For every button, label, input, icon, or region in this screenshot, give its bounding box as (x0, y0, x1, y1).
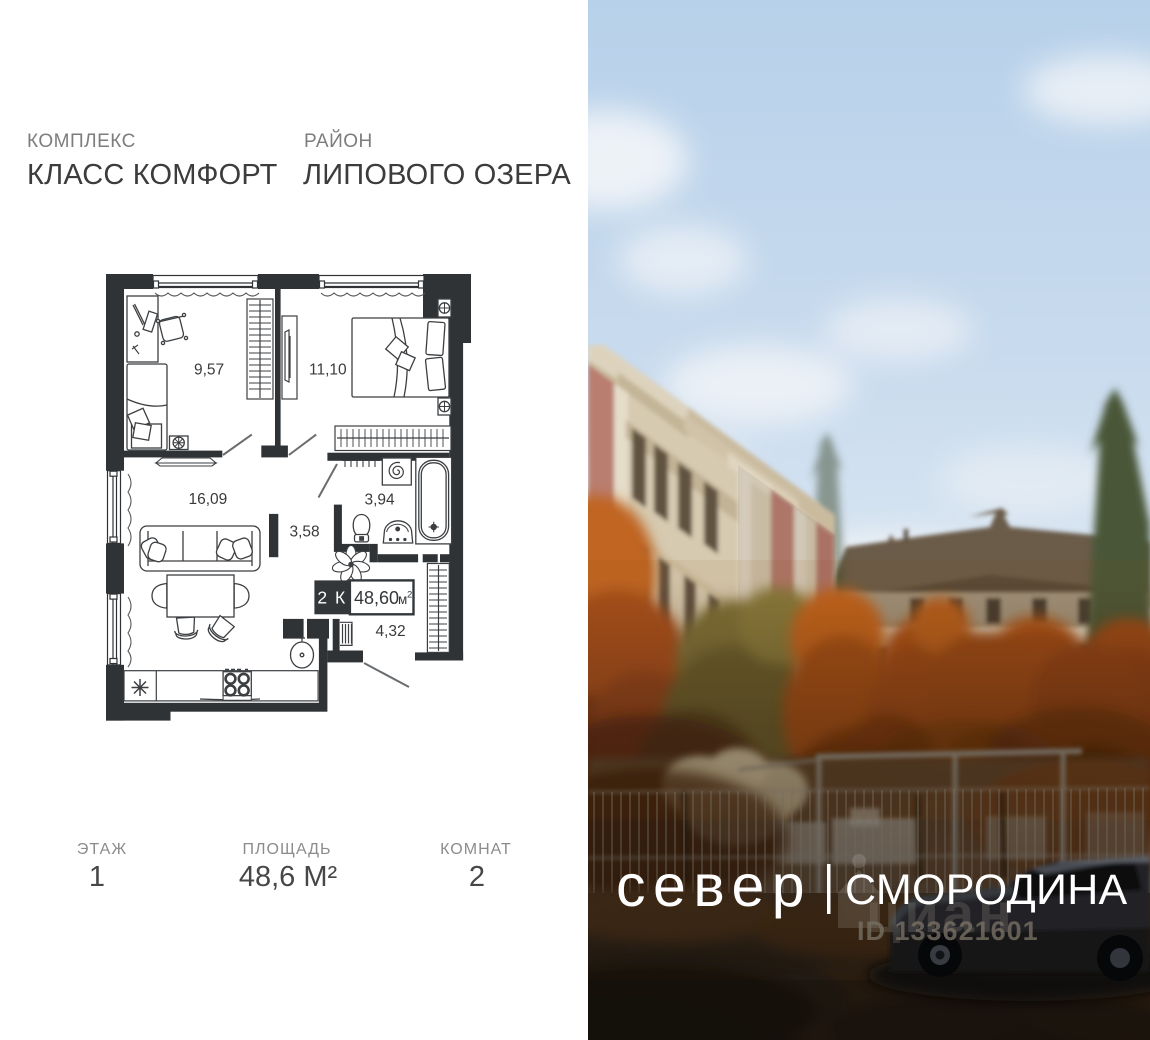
svg-text:СМОРОДИНА: СМОРОДИНА (845, 866, 1128, 914)
svg-text:ID 133621601: ID 133621601 (857, 916, 1039, 946)
svg-text:2 К: 2 К (317, 588, 346, 608)
svg-text:3,94: 3,94 (365, 492, 396, 509)
svg-text:9,57: 9,57 (194, 362, 224, 379)
svg-text:2: 2 (407, 590, 412, 601)
svg-text:север: север (616, 853, 812, 919)
svg-text:м: м (398, 592, 407, 607)
svg-text:48,60: 48,60 (354, 588, 399, 608)
svg-text:3,58: 3,58 (290, 524, 320, 541)
svg-text:11,10: 11,10 (309, 362, 347, 379)
svg-text:4,32: 4,32 (376, 623, 406, 640)
svg-text:16,09: 16,09 (189, 491, 228, 508)
